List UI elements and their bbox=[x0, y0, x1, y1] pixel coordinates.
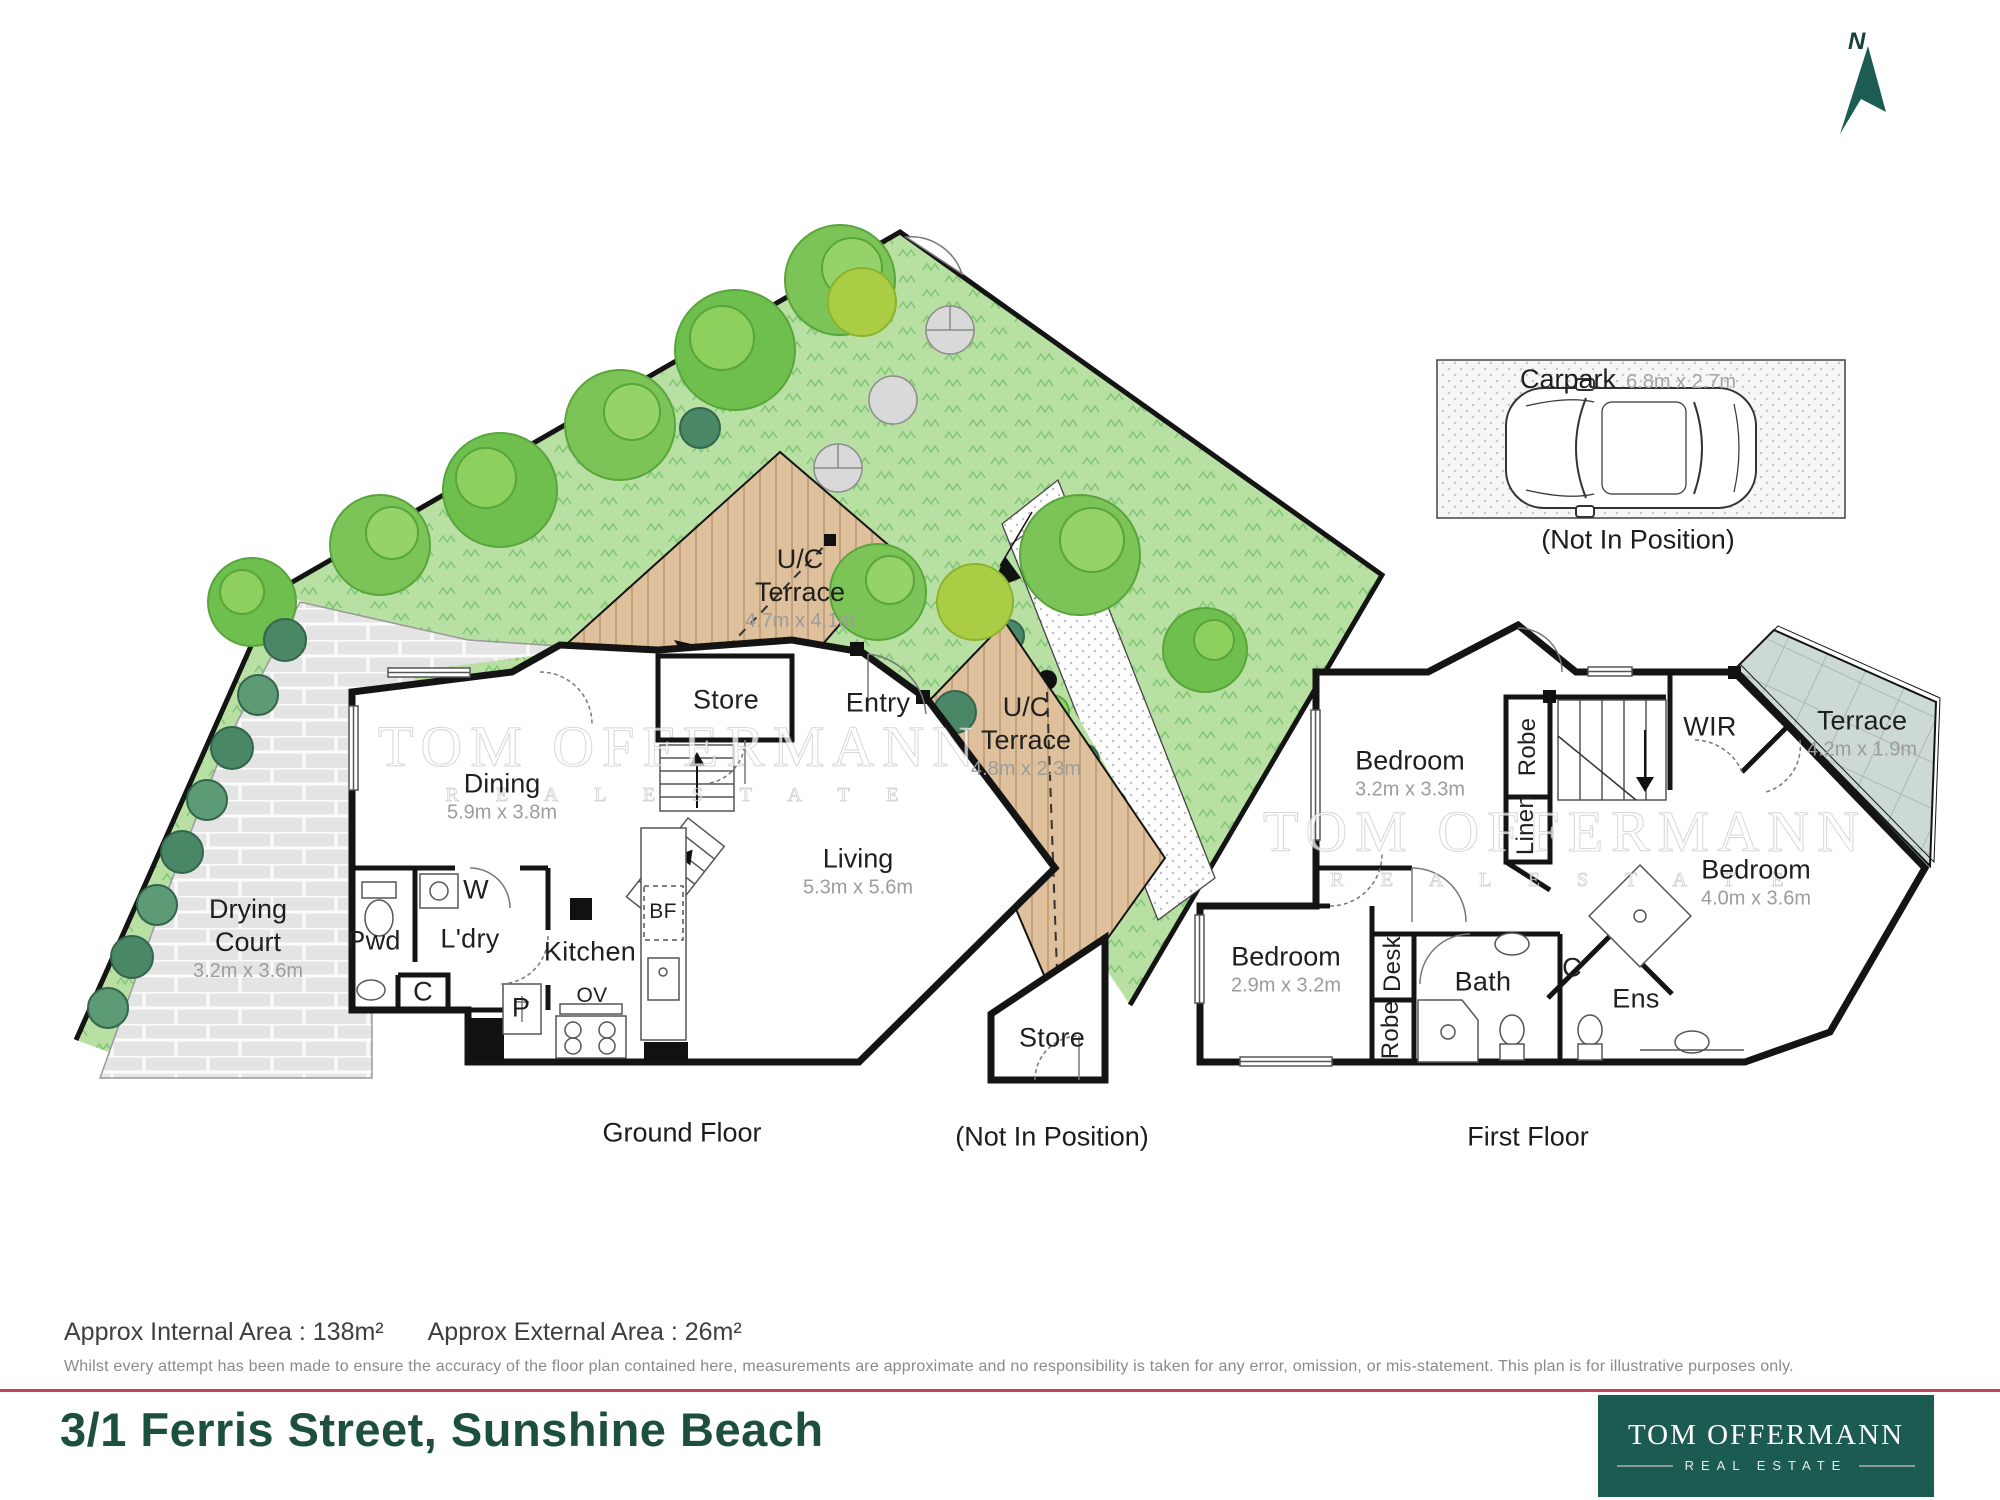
label-pantry: P bbox=[512, 993, 530, 1024]
logo-rule-left bbox=[1617, 1465, 1673, 1467]
label-store-external-note: (Not In Position) bbox=[955, 1122, 1149, 1153]
property-address: 3/1 Ferris Street, Sunshine Beach bbox=[60, 1402, 824, 1457]
label-laundry: L'dry bbox=[440, 924, 499, 955]
area-summary: Approx Internal Area : 138m² Approx Exte… bbox=[64, 1318, 742, 1347]
disclaimer-text: Whilst every attempt has been made to en… bbox=[64, 1358, 1794, 1376]
label-uc-terrace-1: U/C Terrace 4.7m x 4.1m bbox=[745, 543, 855, 633]
floorplan-page: TOM OFFERMANN R E A L E S T A T E TOM OF… bbox=[0, 0, 2000, 1500]
label-bar-fridge: BF bbox=[649, 900, 676, 924]
label-closet-gf: C bbox=[413, 977, 433, 1008]
label-store: Store bbox=[693, 685, 759, 716]
ground-floor-caption: Ground Floor bbox=[602, 1118, 761, 1149]
logo-rule-right bbox=[1859, 1465, 1915, 1467]
car-icon bbox=[1506, 379, 1756, 517]
label-living: Living 5.3m x 5.6m bbox=[803, 842, 913, 899]
label-bath: Bath bbox=[1455, 967, 1512, 998]
label-robe-2: Robe bbox=[1377, 1001, 1405, 1060]
label-robe-1: Robe bbox=[1514, 718, 1542, 777]
external-area: Approx External Area : 26m² bbox=[428, 1318, 742, 1347]
label-drying-court: Drying Court 3.2m x 3.6m bbox=[193, 893, 303, 983]
carpark-note: (Not In Position) bbox=[1541, 525, 1735, 556]
label-terrace-ff: Terrace 4.2m x 1.9m bbox=[1807, 704, 1917, 761]
label-linen: Linen bbox=[1512, 795, 1540, 855]
carpark-dims: 6.8m x 2.7m bbox=[1626, 371, 1736, 394]
agency-logo-name: TOM OFFERMANN bbox=[1628, 1419, 1904, 1452]
north-arrow-icon bbox=[1840, 46, 1886, 134]
label-store-external: Store bbox=[1019, 1023, 1085, 1054]
agency-logo: TOM OFFERMANN REAL ESTATE bbox=[1598, 1395, 1934, 1497]
label-bedroom-3: Bedroom 2.9m x 3.2m bbox=[1231, 940, 1341, 997]
label-pwd: Pwd bbox=[347, 926, 400, 957]
label-oven: OV bbox=[577, 984, 608, 1008]
agency-logo-tagline: REAL ESTATE bbox=[1685, 1458, 1848, 1473]
carpark-name: Carpark bbox=[1520, 364, 1616, 395]
carpark-label: Carpark 6.8m x 2.7m bbox=[1520, 364, 1736, 395]
label-kitchen: Kitchen bbox=[544, 937, 636, 968]
label-uc-terrace-2: U/C Terrace 4.8m x 2.3m bbox=[971, 691, 1081, 781]
first-floor-caption: First Floor bbox=[1467, 1122, 1589, 1153]
label-desk: Desk bbox=[1379, 936, 1407, 992]
north-label: N bbox=[1848, 28, 1865, 56]
label-bedroom-2: Bedroom 4.0m x 3.6m bbox=[1701, 853, 1811, 910]
label-ensuite: Ens bbox=[1612, 984, 1659, 1015]
label-wir: WIR bbox=[1683, 712, 1736, 743]
label-washer: W bbox=[463, 875, 489, 906]
label-closet-ff: C bbox=[1562, 953, 1582, 984]
divider-line bbox=[0, 1389, 2000, 1392]
label-dining: Dining 5.9m x 3.8m bbox=[447, 767, 557, 824]
internal-area: Approx Internal Area : 138m² bbox=[64, 1318, 384, 1347]
label-entry: Entry bbox=[846, 688, 911, 719]
label-bedroom-1: Bedroom 3.2m x 3.3m bbox=[1355, 744, 1465, 801]
